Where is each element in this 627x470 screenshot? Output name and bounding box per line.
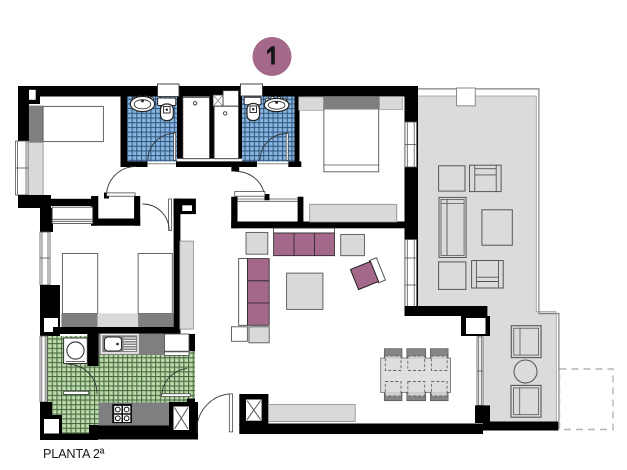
svg-text:PLANTA 2ª: PLANTA 2ª: [43, 447, 105, 461]
